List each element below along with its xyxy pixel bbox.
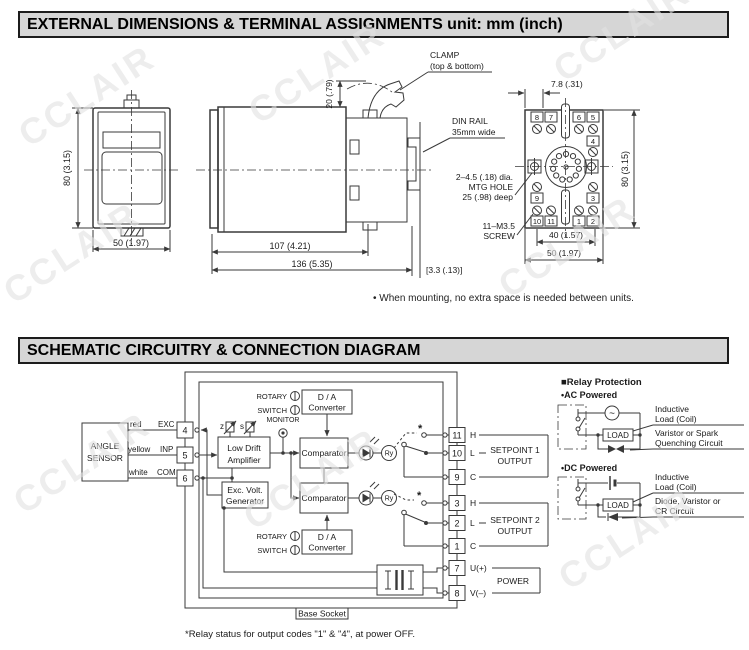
terminal-6: 6 (182, 474, 187, 484)
terminal-9: 9 (454, 473, 459, 483)
socket-pitch-dim: 7.8 (.31) (551, 79, 583, 89)
ac-inductive-label2: Load (Coil) (655, 414, 697, 424)
din-rail-profile (408, 138, 420, 190)
monitor-label: MONITOR (267, 417, 300, 424)
base-socket-label: Base Socket (298, 609, 346, 619)
wire-color-yellow: yellow (128, 445, 150, 454)
clamp-label2: (top & bottom) (430, 61, 484, 71)
front-height-dim: 80 (3.15) (62, 150, 72, 186)
led-2 (348, 482, 382, 505)
front-width-dim: 50 (1.97) (113, 238, 149, 248)
terminal-10-signal: L (470, 448, 475, 458)
dc-load-label: LOAD (607, 501, 629, 510)
terminal-1-signal: C (470, 541, 476, 551)
socket-rear-view: 8 7 6 5 4 (456, 79, 640, 264)
rail-offset-dim: [3.3 (.13)] (426, 265, 462, 275)
dc-protection-circuit (558, 476, 642, 521)
relay-status-footnote: *Relay status for output codes "1" & "4"… (185, 629, 415, 640)
rotary-switch-1-icons (291, 392, 300, 415)
da1-label2: Converter (308, 403, 345, 413)
socket-terminal-10: 10 (533, 217, 541, 226)
wire-signal-com: COM (157, 468, 176, 477)
socket-terminal-2: 2 (591, 217, 595, 226)
span-label: s (240, 422, 244, 431)
relay-contact-1 (394, 433, 449, 479)
terminal-1: 1 (454, 542, 459, 552)
socket-terminal-4: 4 (591, 137, 595, 146)
socket-outer-width-dim: 50 (1.97) (547, 248, 581, 258)
terminal-11: 11 (452, 431, 461, 441)
rotary2-label1: ROTARY (256, 532, 287, 541)
dc-diode-label2: CR Circuit (655, 506, 694, 516)
socket-terminal-8: 8 (535, 113, 539, 122)
front-view: 80 (3.15) 50 (1.97) (62, 90, 180, 252)
da2-label1: D / A (318, 532, 337, 542)
varistor-icon (608, 445, 616, 453)
ac-label2-leader (630, 449, 744, 450)
din-rail-label2: 35mm wide (452, 127, 496, 137)
setpoint1-label1: SETPOINT 1 (490, 445, 540, 455)
socket-terminal-6: 6 (577, 113, 581, 122)
setpoint2-label1: SETPOINT 2 (490, 515, 540, 525)
ac-powered-title: •AC Powered (561, 390, 617, 400)
da2-label2: Converter (308, 543, 345, 553)
wire-color-red: red (130, 420, 142, 429)
diode-icon (608, 513, 618, 521)
terminal-4: 4 (182, 426, 187, 436)
terminal-11-signal: H (470, 430, 476, 440)
terminal-7-signal: U(+) (470, 563, 487, 573)
screw-label2: SCREW (483, 231, 515, 241)
terminal-10: 10 (452, 449, 462, 459)
screw-label1: 11–M3.5 (483, 221, 516, 231)
body-depth-dim: 107 (4.21) (269, 241, 310, 251)
wire-signal-inp: INP (160, 445, 173, 454)
terminal-3: 3 (454, 499, 459, 509)
socket-terminal-3: 3 (591, 194, 595, 203)
socket-height-dim: 80 (3.15) (620, 151, 630, 187)
side-view: 20 (.79) 107 (4.21) 136 (5.35) [3.3 (.13… (196, 50, 505, 278)
dc-label2-leader (622, 517, 744, 518)
mtg-hole-label2: MTG HOLE (469, 182, 514, 192)
terminal-8-signal: V(–) (470, 588, 486, 598)
terminal-5: 5 (182, 451, 187, 461)
da1-label1: D / A (318, 392, 337, 402)
socket-terminal-7: 7 (549, 113, 553, 122)
total-depth-dim: 136 (5.35) (291, 259, 332, 269)
socket-terminal-1: 1 (577, 217, 581, 226)
amp-label2: Amplifier (227, 455, 260, 465)
angle-sensor-box (82, 423, 128, 481)
ac-varistor-label2: Quenching Circuit (655, 438, 723, 448)
setpoint1-label2: OUTPUT (498, 456, 533, 466)
ac-varistor-label1: Varistor or Spark (655, 428, 719, 438)
section-header-external-dimensions: EXTERNAL DIMENSIONS & TERMINAL ASSIGNMEN… (18, 11, 729, 38)
terminal-2: 2 (454, 519, 459, 529)
relay-protection-title: ■Relay Protection (561, 377, 642, 388)
dc-inductive-label2: Load (Coil) (655, 482, 697, 492)
ac-protection-circuit: ~ (558, 405, 642, 453)
terminal-7: 7 (454, 564, 459, 574)
contact2-asterisk: * (417, 490, 422, 502)
socket-terminal-5: 5 (591, 113, 595, 122)
comparator1-label: Comparator (302, 448, 347, 458)
datasheet-page: CCLAIR CCLAIR CCLAIR CCLAIR CCLAIR CCLAI… (0, 0, 749, 650)
rotary2-label2: SWITCH (257, 546, 287, 555)
front-lower-window (102, 152, 162, 204)
led-1 (348, 437, 382, 460)
mtg-hole-label1: 2–4.5 (.18) dia. (456, 172, 513, 182)
clamp-height-dim: 20 (.79) (324, 79, 334, 108)
wire-color-white: white (128, 468, 148, 477)
zero-label: z (220, 422, 224, 431)
din-rail-label: DIN RAIL (452, 116, 488, 126)
relay2-label: Ry (385, 496, 394, 503)
rotary1-label1: ROTARY (256, 392, 287, 401)
socket-terminal-9: 9 (535, 194, 539, 203)
relay-contact-2 (394, 494, 449, 548)
gen-label2: Generator (226, 496, 264, 506)
ac-inductive-label1: Inductive (655, 404, 689, 414)
clamp-label: CLAMP (430, 50, 460, 60)
transformer (377, 565, 423, 595)
angle-sensor-label2: SENSOR (87, 453, 123, 463)
section-header-schematic: SCHEMATIC CIRCUITRY & CONNECTION DIAGRAM (18, 337, 729, 364)
amp-label1: Low Drift (227, 443, 261, 453)
relay1-label: Ry (385, 451, 394, 458)
terminal-2-signal: L (470, 518, 475, 528)
wire-signal-exc: EXC (158, 420, 175, 429)
dc-inductive-label1: Inductive (655, 472, 689, 482)
clamp-shape (368, 81, 404, 118)
socket-terminal-11: 11 (547, 217, 555, 226)
rotary1-label2: SWITCH (257, 406, 287, 415)
rotary-switch-2-icons (291, 532, 300, 555)
socket-inner-width-dim: 40 (1.57) (549, 230, 583, 240)
comparator2-label: Comparator (302, 493, 347, 503)
contact1-asterisk: * (418, 423, 423, 435)
gen-label1: Exc. Volt. (227, 485, 262, 495)
setpoint2-label2: OUTPUT (498, 526, 533, 536)
ac-source-symbol: ~ (609, 409, 615, 420)
mtg-hole-label3: 25 (.98) deep (462, 192, 513, 202)
terminal-3-signal: H (470, 498, 476, 508)
power-label: POWER (497, 576, 529, 586)
dimensions-diagram: 80 (3.15) 50 (1.97) 20 (. (0, 40, 749, 340)
terminal-8: 8 (454, 589, 459, 599)
dc-diode-label1: Diode, Varistor or (655, 496, 721, 506)
ac-load-label: LOAD (607, 431, 629, 440)
pin-circle (546, 147, 587, 188)
terminal-9-signal: C (470, 472, 476, 482)
dc-powered-title: •DC Powered (561, 463, 617, 473)
angle-sensor-label1: ANGLE (91, 441, 120, 451)
monitor-jack (279, 429, 287, 455)
schematic-diagram: Base Socket ANGLE SENSOR red EXC yellow … (0, 365, 749, 650)
